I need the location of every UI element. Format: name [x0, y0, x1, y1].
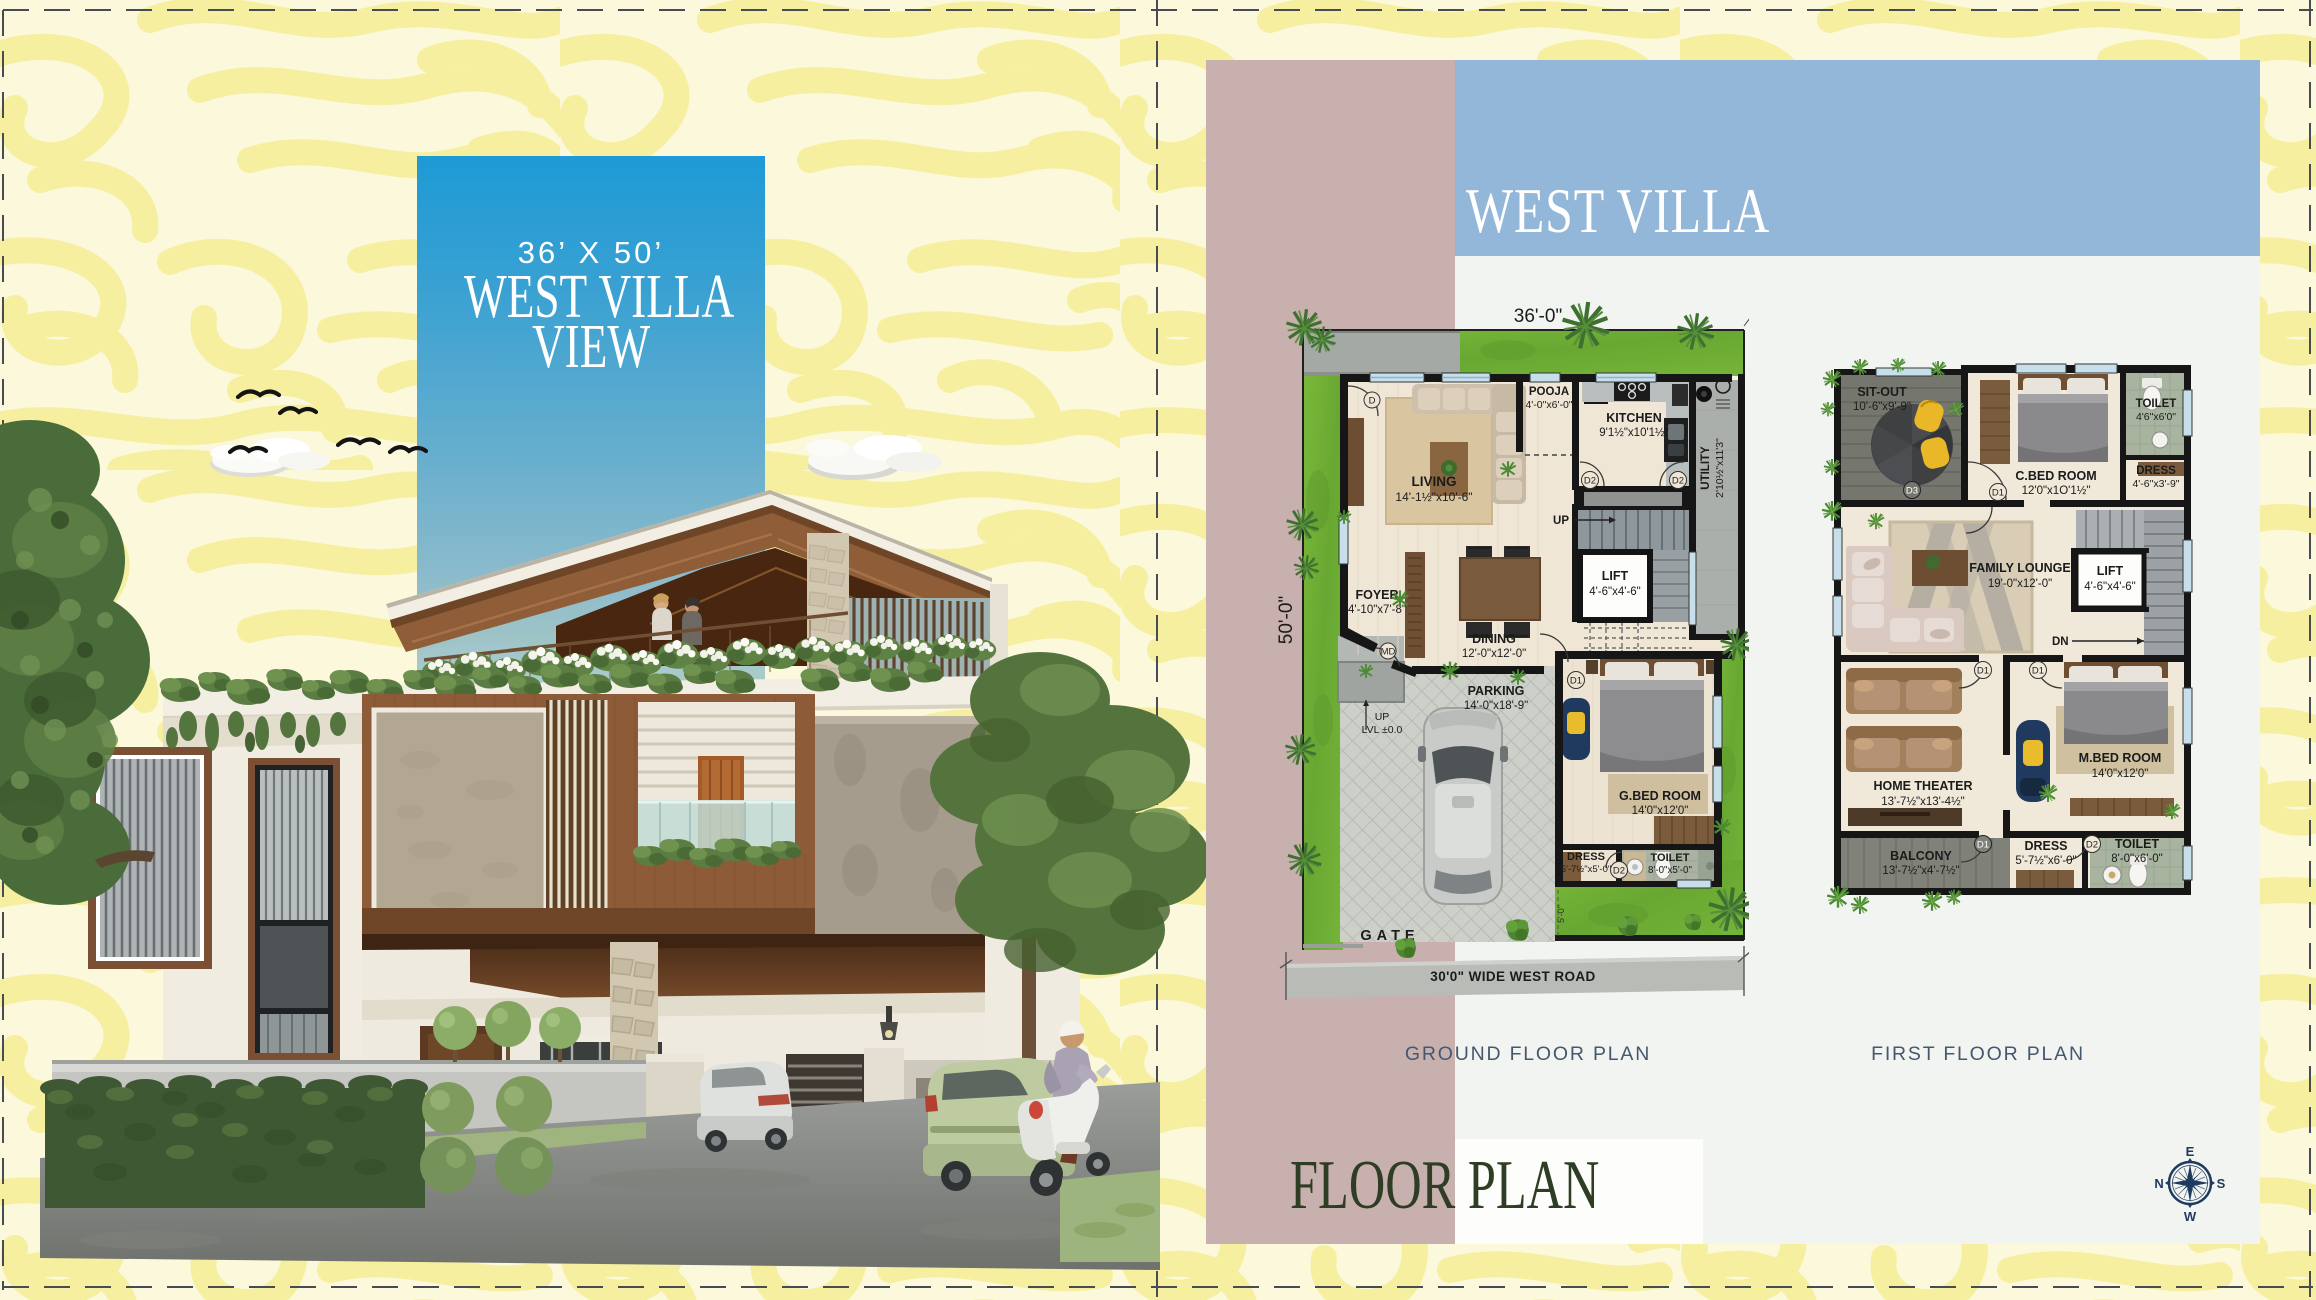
svg-text:14'-0"x18'-9": 14'-0"x18'-9" [1464, 700, 1528, 712]
svg-text:S: S [2217, 1176, 2226, 1191]
svg-text:C.BED ROOM: C.BED ROOM [2015, 469, 2096, 483]
svg-text:N: N [2154, 1176, 2163, 1191]
svg-text:LVL ±0.0: LVL ±0.0 [1362, 724, 1403, 736]
svg-text:13'-7½"x13'-4½": 13'-7½"x13'-4½" [1881, 796, 1965, 808]
svg-text:PARKING: PARKING [1468, 684, 1525, 698]
svg-text:POOJA: POOJA [1529, 386, 1569, 398]
svg-text:4'-10"x7'-8": 4'-10"x7'-8" [1348, 604, 1406, 616]
svg-text:8'-0"x6'-0": 8'-0"x6'-0" [2111, 853, 2163, 865]
svg-text:TOILET: TOILET [1651, 852, 1690, 864]
svg-text:14'0"x12'0": 14'0"x12'0" [1632, 805, 1689, 817]
svg-text:HOME THEATER: HOME THEATER [1873, 779, 1972, 793]
svg-text:4'-0"x6'-0": 4'-0"x6'-0" [1525, 399, 1572, 411]
svg-text:5'-7½"x5'-0": 5'-7½"x5'-0" [1561, 864, 1612, 875]
svg-text:D2: D2 [1584, 476, 1596, 487]
svg-text:TOILET: TOILET [2136, 398, 2177, 410]
svg-text:D1: D1 [1570, 676, 1582, 687]
svg-text:LIFT: LIFT [1602, 569, 1629, 583]
svg-text:4'-6"x4'-6": 4'-6"x4'-6" [1589, 586, 1641, 598]
svg-text:LIFT: LIFT [2097, 564, 2124, 578]
svg-text:D1: D1 [1977, 840, 1989, 851]
svg-text:D1: D1 [1992, 488, 2004, 499]
svg-text:LIVING: LIVING [1411, 474, 1456, 489]
svg-text:DINING: DINING [1472, 632, 1516, 646]
svg-text:19'-0"x12'-0": 19'-0"x12'-0" [1988, 578, 2052, 590]
svg-text:13'-7½"x4'-7½": 13'-7½"x4'-7½" [1882, 865, 1959, 877]
svg-text:D: D [1369, 396, 1376, 407]
svg-text:E: E [2186, 1144, 2195, 1159]
svg-text:50'-0": 50'-0" [1278, 596, 1297, 644]
svg-text:KITCHEN: KITCHEN [1606, 411, 1662, 425]
svg-text:M.BED ROOM: M.BED ROOM [2079, 751, 2162, 765]
svg-text:D1: D1 [1977, 666, 1989, 677]
svg-text:DRESS: DRESS [1567, 851, 1605, 863]
svg-text:4'-6"x4'-6": 4'-6"x4'-6" [2084, 581, 2136, 593]
svg-text:D2: D2 [1613, 866, 1625, 877]
svg-text:DRESS: DRESS [2136, 465, 2176, 477]
svg-text:TOILET: TOILET [2115, 837, 2160, 851]
svg-text:8'-0"x5'-0": 8'-0"x5'-0" [1648, 865, 1692, 876]
svg-text:DRESS: DRESS [2024, 839, 2067, 853]
svg-text:4'-6"x3'-9": 4'-6"x3'-9" [2132, 478, 2179, 490]
svg-text:BALCONY: BALCONY [1890, 849, 1952, 863]
svg-text:FOYER: FOYER [1355, 588, 1398, 602]
svg-text:12'0"x1O'1½": 12'0"x1O'1½" [2022, 485, 2091, 497]
svg-text:UP: UP [1553, 515, 1569, 527]
svg-text:14'-1½"x10'-6": 14'-1½"x10'-6" [1395, 490, 1472, 504]
svg-text:DN: DN [2052, 636, 2069, 648]
svg-text:5'-0": 5'-0" [1556, 905, 1566, 923]
svg-text:4'6"x6'0": 4'6"x6'0" [2136, 411, 2176, 423]
svg-text:FAMILY LOUNGE: FAMILY LOUNGE [1969, 561, 2070, 575]
svg-text:MD: MD [1381, 647, 1396, 658]
svg-text:D2: D2 [2086, 840, 2098, 851]
svg-text:5'-7½"x6'-0": 5'-7½"x6'-0" [2015, 855, 2076, 867]
svg-text:10'-6"x9'-9": 10'-6"x9'-9" [1853, 401, 1911, 413]
svg-text:D1: D1 [2032, 666, 2044, 677]
svg-text:D3: D3 [1906, 486, 1918, 497]
svg-text:14'0"x12'0": 14'0"x12'0" [2092, 768, 2149, 780]
svg-text:30'0" WIDE WEST ROAD: 30'0" WIDE WEST ROAD [1430, 969, 1595, 984]
svg-text:UP: UP [1375, 711, 1390, 723]
svg-text:9'1½"x10'1½": 9'1½"x10'1½" [1599, 427, 1668, 439]
svg-text:2'10½"x11'3": 2'10½"x11'3" [1714, 438, 1726, 498]
svg-text:G.BED ROOM: G.BED ROOM [1619, 789, 1701, 803]
svg-text:D2: D2 [1672, 476, 1684, 487]
svg-text:UTILITY: UTILITY [1700, 446, 1712, 490]
svg-text:36'-0": 36'-0" [1514, 306, 1562, 327]
svg-text:W: W [2184, 1209, 2197, 1224]
svg-text:12'-0"x12'-0": 12'-0"x12'-0" [1462, 648, 1526, 660]
svg-text:SIT-OUT: SIT-OUT [1857, 385, 1907, 399]
